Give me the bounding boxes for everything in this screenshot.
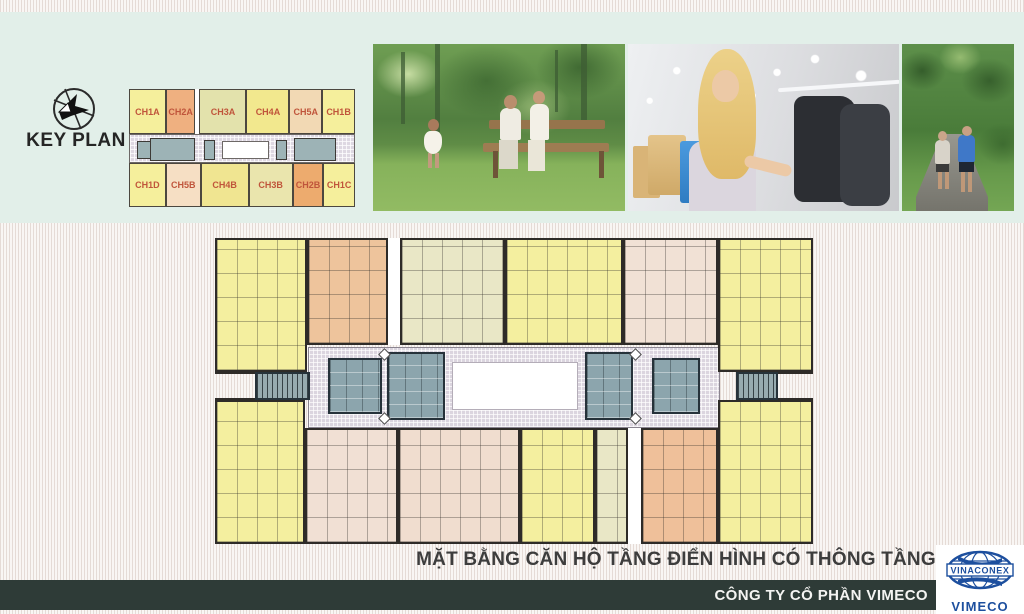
- person-woman: [533, 91, 545, 104]
- keyplan-unit-label: CH3A: [211, 107, 236, 117]
- keyplan-unit-ch1a: CH1A: [129, 89, 166, 134]
- keyplan-unit-ch3a: CH3A: [199, 89, 246, 134]
- vimeco-wordmark: VIMECO: [951, 600, 1008, 613]
- person-walker: [938, 172, 942, 189]
- vimeco-logo: VINACONEX VIMECO: [936, 545, 1024, 614]
- keyplan-title: KEY PLAN: [16, 130, 136, 152]
- park-path: [916, 134, 988, 211]
- keyplan-void: [222, 141, 269, 159]
- floorplan-unit: [305, 428, 398, 544]
- keyplan-unit-ch1c: CH1C: [323, 163, 355, 207]
- keyplan-unit-label: CH4B: [212, 180, 237, 190]
- floorplan-unit: [520, 428, 595, 544]
- floorplan-unit: [215, 238, 307, 372]
- svg-text:VINACONEX: VINACONEX: [951, 566, 1010, 576]
- keyplan-core-block: [276, 140, 287, 160]
- floorplan-unit: [718, 400, 813, 544]
- floorplan-void: [452, 362, 578, 410]
- vinaconex-globe-icon: VINACONEX: [944, 548, 1016, 599]
- floorplan-unit: [718, 238, 813, 372]
- person-walker: [962, 126, 972, 136]
- keyplan-unit-ch5b: CH5B: [166, 163, 201, 207]
- keyplan-unit-label: CH5A: [294, 107, 319, 117]
- floorplan-stair: [255, 372, 310, 400]
- keyplan-unit-label: CH4A: [256, 107, 281, 117]
- floorplan-stair: [736, 372, 778, 400]
- person-child: [428, 153, 432, 168]
- floorplan-unit: [398, 428, 520, 544]
- keyplan-unit-ch4a: CH4A: [246, 89, 289, 134]
- floorplan-rail: [778, 371, 813, 374]
- tree-trunk: [401, 52, 405, 124]
- person-walker: [968, 172, 972, 192]
- tree-trunk: [555, 50, 558, 112]
- keyplan-unit-ch2a: CH2A: [166, 89, 196, 134]
- floorplan-unit: [307, 238, 388, 345]
- person-woman: [530, 104, 549, 140]
- person-walker: [961, 172, 965, 192]
- floorplan-rail: [778, 398, 813, 401]
- floorplan-core: [387, 352, 445, 420]
- person-child: [424, 131, 442, 154]
- floorplan-core: [328, 358, 382, 414]
- keyplan: CH1ACH2ACH3ACH4ACH5ACH1B CH1DCH5BCH4BCH3…: [129, 89, 355, 207]
- person-walker: [935, 140, 950, 164]
- person-man: [500, 108, 521, 140]
- tree-trunk: [581, 44, 587, 122]
- keyplan-unit-ch5a: CH5A: [289, 89, 322, 134]
- floorplan-core: [652, 358, 700, 414]
- floorplan-unit: [400, 238, 505, 345]
- floorplan-unit: [595, 428, 628, 544]
- keyplan-unit-ch4b: CH4B: [201, 163, 249, 207]
- floorplan-gap: [628, 428, 641, 544]
- clothes-rail: [778, 80, 899, 93]
- floorplan-rail: [215, 398, 255, 401]
- footer-bar: CÔNG TY CỔ PHẦN VIMECO: [0, 580, 938, 610]
- person-walker: [959, 161, 974, 172]
- floorplan-gap: [388, 238, 400, 345]
- floorplan-unit: [641, 428, 718, 544]
- photo-family-park: [373, 44, 625, 211]
- photo-shopping: [628, 44, 899, 211]
- keyplan-core-block: [294, 138, 337, 161]
- person-shopper: [712, 70, 739, 102]
- bench-leg: [599, 151, 604, 178]
- keyplan-corridor: [129, 134, 355, 163]
- keyplan-unit-ch1b: CH1B: [322, 89, 355, 134]
- person-walker: [936, 163, 949, 172]
- keyplan-unit-label: CH1D: [135, 180, 160, 190]
- floorplan-unit: [215, 400, 305, 544]
- hanging-coats: [840, 104, 890, 206]
- person-child: [428, 119, 439, 131]
- keyplan-unit-ch1d: CH1D: [129, 163, 166, 207]
- keyplan-unit-label: CH1A: [135, 107, 160, 117]
- floorplan-rail: [215, 371, 255, 374]
- keyplan-core-block: [204, 140, 215, 160]
- plan-caption: MẶT BẰNG CĂN HỘ TẦNG ĐIỂN HÌNH CÓ THÔNG …: [376, 549, 976, 571]
- keyplan-row-top: CH1ACH2ACH3ACH4ACH5ACH1B: [129, 89, 355, 134]
- floorplan-unit: [623, 238, 718, 345]
- floorplan-core: [585, 352, 633, 420]
- keyplan-unit-label: CH1B: [326, 107, 351, 117]
- keyplan-unit-label: CH2B: [296, 180, 321, 190]
- person-walker: [958, 135, 975, 162]
- photo-park-walk: [902, 44, 1014, 211]
- person-walker: [938, 131, 947, 141]
- person-walker: [945, 172, 949, 189]
- person-woman: [528, 140, 545, 171]
- keyplan-unit-label: CH3B: [258, 180, 283, 190]
- person-man: [504, 95, 517, 109]
- keyplan-row-bottom: CH1DCH5BCH4BCH3BCH2BCH1C: [129, 163, 355, 207]
- company-name: CÔNG TY CỔ PHẦN VIMECO: [714, 587, 938, 604]
- keyplan-unit-ch2b: CH2B: [293, 163, 324, 207]
- keyplan-unit-label: CH5B: [171, 180, 196, 190]
- keyplan-unit-ch3b: CH3B: [249, 163, 293, 207]
- person-child: [435, 153, 439, 168]
- keyplan-unit-label: CH1C: [327, 180, 352, 190]
- floorplan-unit: [505, 238, 623, 345]
- person-man: [499, 140, 518, 169]
- keyplan-core-block: [150, 138, 195, 161]
- brochure-page: KEY PLAN CH1ACH2ACH3ACH4ACH5ACH1B CH1DCH…: [0, 0, 1024, 614]
- north-arrow-icon: [50, 85, 98, 133]
- floorplan: [215, 232, 815, 544]
- bench-leg: [493, 151, 498, 178]
- keyplan-unit-label: CH2A: [168, 107, 193, 117]
